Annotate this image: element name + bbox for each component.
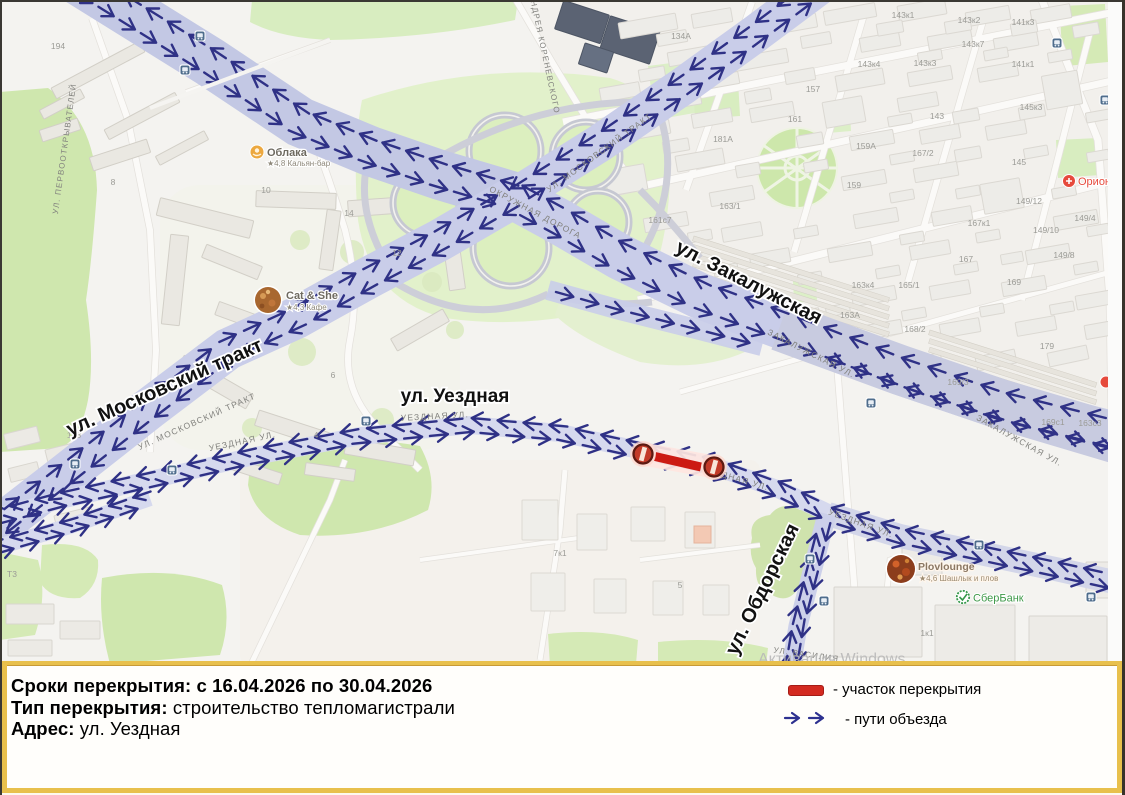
svg-text:167к1: 167к1 xyxy=(968,218,991,228)
svg-text:ул. Уездная: ул. Уездная xyxy=(401,386,510,407)
svg-text:Plovlounge: Plovlounge xyxy=(918,561,975,573)
svg-text:1к1: 1к1 xyxy=(920,628,933,638)
svg-text:181А: 181А xyxy=(713,134,733,144)
svg-text:169с1: 169с1 xyxy=(1041,417,1064,427)
svg-text:143к7: 143к7 xyxy=(962,39,985,49)
svg-text:163/1: 163/1 xyxy=(719,201,741,211)
svg-text:★4,3 Кафе: ★4,3 Кафе xyxy=(286,303,327,312)
svg-text:8: 8 xyxy=(111,177,116,187)
svg-text:179: 179 xyxy=(1040,341,1054,351)
svg-text:169: 169 xyxy=(1007,277,1021,287)
svg-text:141к1: 141к1 xyxy=(1012,59,1035,69)
svg-text:143: 143 xyxy=(930,111,944,121)
svg-text:159: 159 xyxy=(847,180,861,190)
svg-text:149/12: 149/12 xyxy=(1016,196,1042,206)
svg-text:14: 14 xyxy=(344,208,354,218)
svg-text:149/10: 149/10 xyxy=(1033,225,1059,235)
svg-text:143к4: 143к4 xyxy=(858,59,881,69)
svg-text:СберБанк: СберБанк xyxy=(973,593,1024,605)
svg-text:143к2: 143к2 xyxy=(958,15,981,25)
svg-text:12: 12 xyxy=(392,248,402,258)
svg-text:159А: 159А xyxy=(856,141,876,151)
svg-text:Cat & She: Cat & She xyxy=(286,290,338,302)
svg-text:157: 157 xyxy=(806,84,820,94)
svg-text:145: 145 xyxy=(1012,157,1026,167)
svg-text:7к1: 7к1 xyxy=(553,548,566,558)
svg-text:6: 6 xyxy=(331,370,336,380)
svg-text:145к3: 145к3 xyxy=(1020,102,1043,112)
svg-text:★4,8 Кальян-бар: ★4,8 Кальян-бар xyxy=(267,159,331,168)
svg-text:4: 4 xyxy=(314,430,319,440)
svg-text:143к3: 143к3 xyxy=(914,58,937,68)
svg-text:Т3: Т3 xyxy=(7,569,17,579)
svg-text:168/2: 168/2 xyxy=(904,324,926,334)
svg-text:163А: 163А xyxy=(840,310,860,320)
svg-text:143к1: 143к1 xyxy=(892,10,915,20)
svg-text:163с3: 163с3 xyxy=(1078,418,1101,428)
svg-text:149/8: 149/8 xyxy=(1053,250,1075,260)
svg-text:141к3: 141к3 xyxy=(1012,17,1035,27)
svg-text:Облака: Облака xyxy=(267,147,308,159)
svg-text:134А: 134А xyxy=(671,31,691,41)
svg-text:167/2: 167/2 xyxy=(912,148,934,158)
svg-text:161: 161 xyxy=(788,114,802,124)
svg-text:194: 194 xyxy=(51,41,65,51)
svg-text:10: 10 xyxy=(261,185,271,195)
svg-text:165/1: 165/1 xyxy=(898,280,920,290)
svg-text:5: 5 xyxy=(678,580,683,590)
svg-text:161с7: 161с7 xyxy=(648,215,671,225)
svg-text:163к4: 163к4 xyxy=(852,280,875,290)
svg-text:Активация Windows: Активация Windows xyxy=(758,651,905,661)
svg-text:★4,6 Шашлык и плов: ★4,6 Шашлык и плов xyxy=(919,574,998,583)
svg-text:169/3: 169/3 xyxy=(947,377,969,387)
svg-text:167: 167 xyxy=(959,254,973,264)
svg-text:149/4: 149/4 xyxy=(1074,213,1096,223)
